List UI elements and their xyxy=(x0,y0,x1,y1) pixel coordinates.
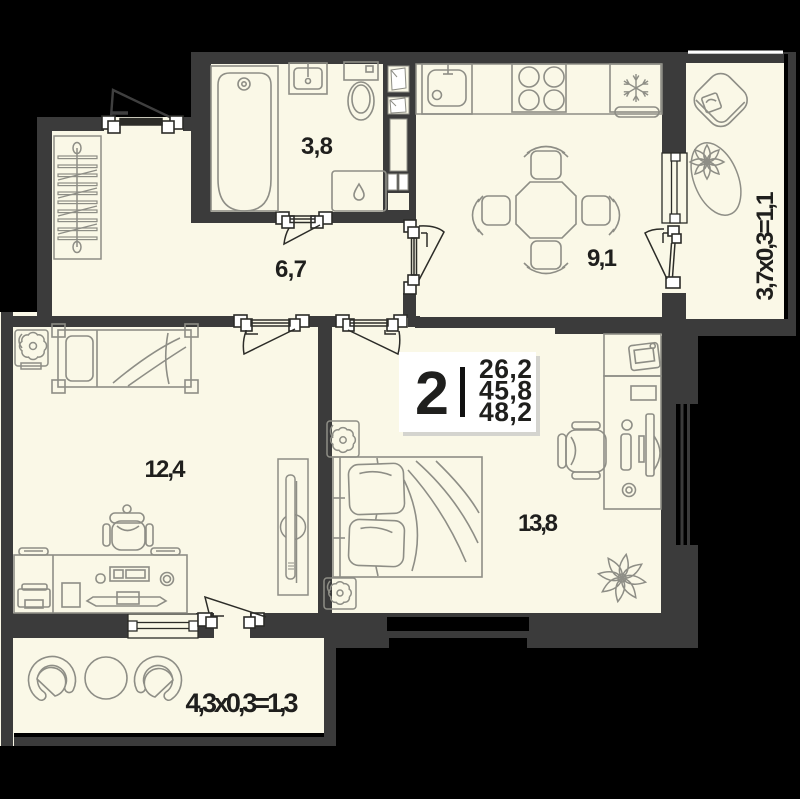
svg-text:3,8: 3,8 xyxy=(301,133,333,160)
svg-text:2: 2 xyxy=(415,359,449,427)
svg-text:12,4: 12,4 xyxy=(145,456,187,483)
svg-text:13,8: 13,8 xyxy=(518,510,558,537)
svg-text:48,2: 48,2 xyxy=(479,397,532,427)
svg-text:9,1: 9,1 xyxy=(587,245,617,272)
svg-text:6,7: 6,7 xyxy=(275,256,307,283)
svg-text:4,3x0,3=1,3: 4,3x0,3=1,3 xyxy=(186,688,299,718)
svg-text:3,7x0,3=1,1: 3,7x0,3=1,1 xyxy=(752,192,779,301)
